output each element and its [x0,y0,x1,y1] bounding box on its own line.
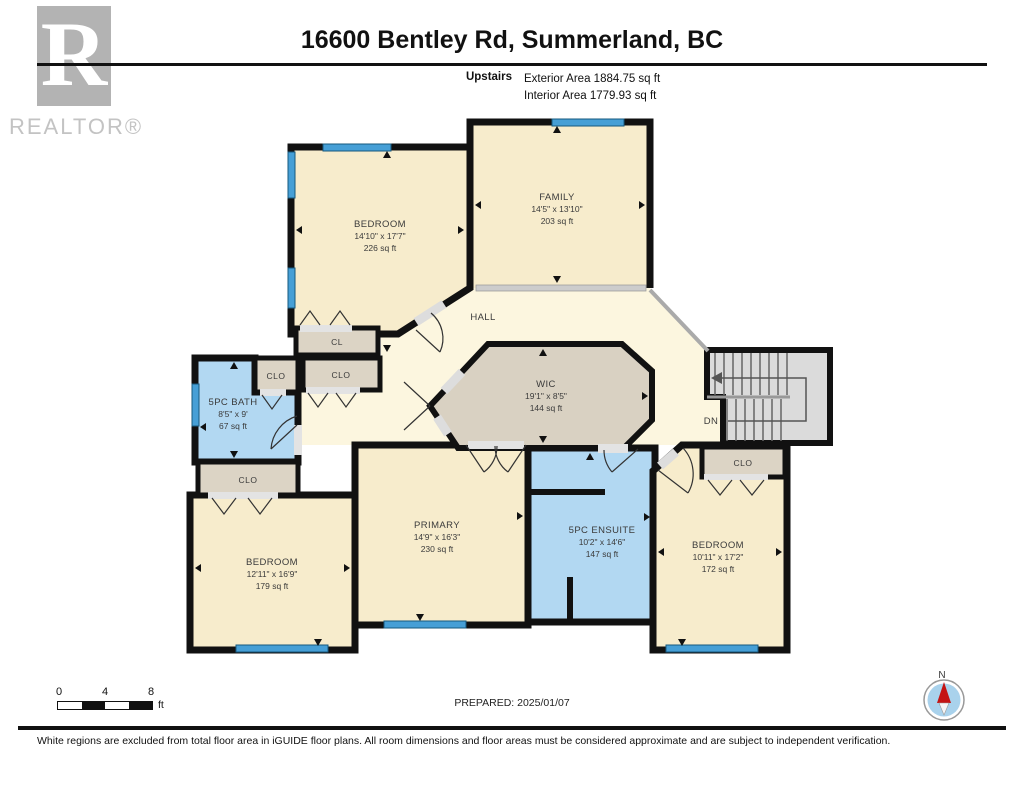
label-hall: HALL [470,312,495,323]
label-cl: CL [331,337,343,347]
label-bath-area: 67 sq ft [219,421,248,431]
label-family-name: FAMILY [539,192,575,203]
label-primary-name: PRIMARY [414,520,460,531]
label-primary-area: 230 sq ft [421,544,454,554]
label-family-area: 203 sq ft [541,216,574,226]
label-family-dims: 14'5" x 13'10" [531,204,582,214]
label-wic-name: WIC [536,379,556,390]
label-bedroom-br-name: BEDROOM [692,540,744,551]
stairs [707,350,830,443]
label-wic-area: 144 sq ft [530,403,563,413]
label-wic-dims: 19'1" x 8'5" [525,391,567,401]
label-bath-name: 5PC BATH [209,397,258,408]
label-clo-bath: CLO [267,371,286,381]
label-bedroom-br-area: 172 sq ft [702,564,735,574]
label-clo-below-bath: CLO [239,475,258,485]
label-bedroom-bl-name: BEDROOM [246,557,298,568]
footer-disclaimer: White regions are excluded from total fl… [37,735,997,747]
label-ensuite-name: 5PC ENSUITE [569,525,636,536]
footer-divider [18,726,1006,730]
label-bedroom-bl-area: 179 sq ft [256,581,289,591]
label-bedroom-tl-name: BEDROOM [354,219,406,230]
label-stairs-down: DN [704,416,719,427]
floor-plan-svg: BEDROOM 14'10" x 17'7" 226 sq ft FAMILY … [0,0,1024,791]
label-ensuite-area: 147 sq ft [586,549,619,559]
label-bedroom-tl-dims: 14'10" x 17'7" [354,231,405,241]
compass: N [918,664,972,731]
label-clo-bottom-right: CLO [734,458,753,468]
label-primary-dims: 14'9" x 16'3" [414,532,461,542]
label-bedroom-br-dims: 10'11" x 17'2" [693,552,744,562]
family-sill [476,285,646,291]
label-clo-hall: CLO [332,370,351,380]
prepared-date: PREPARED: 2025/01/07 [0,697,1024,709]
label-bedroom-bl-dims: 12'11" x 16'9" [247,569,298,579]
label-ensuite-dims: 10'2" x 14'6" [579,537,626,547]
floor-plan-page: R REALTOR® 16600 Bentley Rd, Summerland,… [0,0,1024,791]
label-bedroom-tl-area: 226 sq ft [364,243,397,253]
label-bath-dims: 8'5" x 9' [218,409,248,419]
